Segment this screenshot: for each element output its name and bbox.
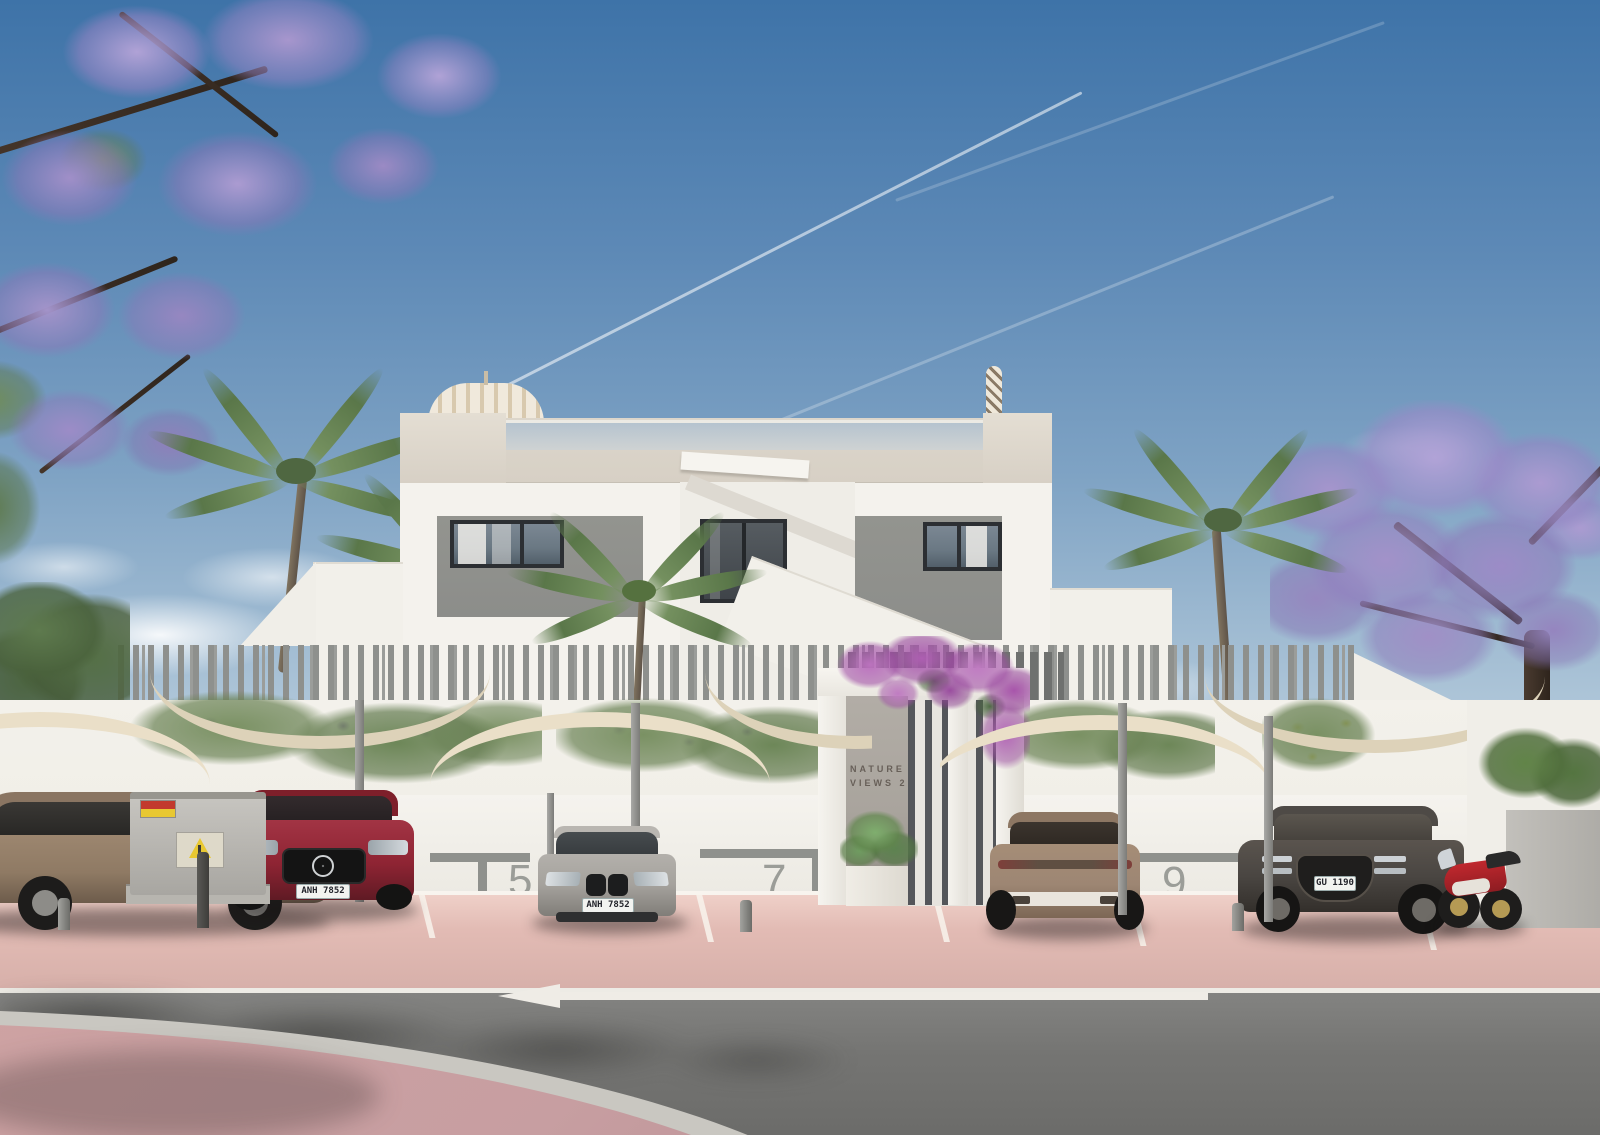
contrail [457, 91, 1082, 411]
window-mullion [520, 524, 524, 564]
lane-line [558, 992, 1208, 1000]
space-divider [1132, 853, 1248, 862]
curtain [458, 524, 486, 564]
carport-post [1264, 716, 1273, 922]
bmw-kidney-grille [608, 874, 628, 896]
road-arrow [498, 984, 560, 1008]
tail-light-band [998, 860, 1132, 869]
canopy-wave [940, 715, 1270, 820]
moto-rim [1450, 898, 1468, 916]
car-lower-intake [556, 912, 658, 922]
box-label [140, 800, 176, 818]
car-wheel [986, 890, 1016, 930]
canopy-wave [705, 596, 872, 749]
palm-crown [1204, 508, 1242, 532]
carport-post [1118, 703, 1127, 915]
car-headlight [633, 872, 669, 886]
planter-fern [840, 806, 918, 872]
canopy-wave [430, 712, 770, 810]
car-headlight [368, 840, 408, 855]
wheel-rim [1412, 898, 1436, 922]
window-glass [454, 524, 560, 564]
palm-crown [276, 458, 316, 484]
planter-box [846, 866, 908, 906]
moto-rim [1492, 900, 1510, 918]
property-render-scene: 2 5 7 9 NATURE VIEWS 2 [0, 0, 1600, 1135]
carport-canopy-left [0, 560, 872, 810]
bollard [58, 898, 70, 930]
split-headlight [1374, 868, 1406, 874]
contrail [895, 21, 1385, 202]
glass-railing [505, 420, 983, 450]
parapet-block-left [400, 413, 506, 483]
car-headlight [545, 872, 581, 886]
umbrella-pole-tip [484, 371, 488, 385]
bollard [1232, 903, 1244, 931]
mercedes-star-badge [312, 855, 334, 877]
bollard-dark [197, 852, 209, 928]
parapet-block-right [983, 413, 1052, 483]
rooftop-umbrella-folded [986, 366, 1002, 418]
wheel-rim [32, 890, 58, 916]
bollard [740, 900, 752, 932]
license-plate: ANH 7852 [582, 898, 634, 913]
split-headlight [1374, 856, 1406, 862]
curtain [492, 524, 511, 564]
license-plate: GU 1190 [1314, 876, 1356, 891]
space-divider [700, 849, 812, 858]
car-wheel [376, 884, 412, 910]
bmw-kidney-grille [586, 874, 606, 896]
space-divider [430, 853, 478, 862]
canopy-wave [150, 596, 490, 749]
license-plate: ANH 7852 [296, 884, 350, 899]
right-bush [1476, 718, 1600, 818]
